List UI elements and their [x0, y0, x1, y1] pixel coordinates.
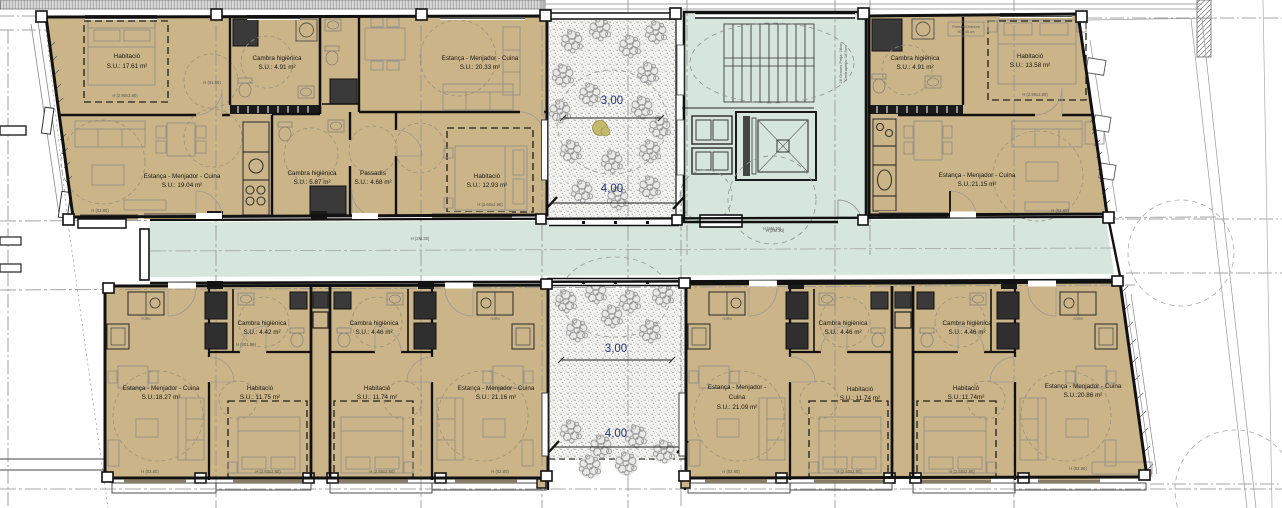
svg-text:Habitació: Habitació	[847, 386, 874, 393]
svg-text:S.U.: 12.93 m²: S.U.: 12.93 m²	[467, 182, 508, 189]
svg-text:H (2.60x2.90): H (2.60x2.90)	[477, 202, 503, 207]
svg-text:S.U.: 4.91 m²: S.U.: 4.91 m²	[896, 64, 933, 71]
svg-text:4,00: 4,00	[601, 183, 623, 195]
svg-text:S.U.: 4.46 m²: S.U.: 4.46 m²	[355, 329, 392, 336]
svg-text:H (02.80): H (02.80)	[141, 469, 159, 474]
svg-text:H (2.90x2.80): H (2.90x2.80)	[1022, 92, 1048, 97]
svg-text:S.U.:21.15 m²: S.U.:21.15 m²	[958, 181, 997, 188]
svg-text:Contrapetja: 18.5cm: Contrapetja: 18.5cm	[843, 44, 848, 81]
svg-text:S.U.: 17.61 m²: S.U.: 17.61 m²	[107, 63, 148, 70]
svg-text:4,00: 4,00	[605, 428, 627, 440]
svg-text:Passadís: Passadís	[360, 170, 386, 177]
svg-text:H (02.80): H (02.80)	[1051, 208, 1069, 213]
svg-text:Habitació: Habitació	[247, 385, 274, 392]
svg-text:3,00: 3,00	[601, 95, 623, 107]
svg-text:S.U.:11.74m²: S.U.:11.74m²	[948, 394, 985, 401]
svg-text:S.U.: 20.33 m²: S.U.: 20.33 m²	[460, 64, 501, 71]
svg-text:H (2.60x2.90): H (2.60x2.90)	[836, 469, 862, 474]
svg-text:H (2M.30): H (2M.30)	[766, 228, 785, 233]
svg-text:S.U.: 11.75 m²: S.U.: 11.75 m²	[240, 394, 280, 401]
svg-text:H (2.60x2.90): H (2.60x2.90)	[255, 469, 281, 474]
svg-text:S.U.: 4.46 m²: S.U.: 4.46 m²	[948, 329, 985, 336]
svg-text:H (01.50): H (01.50)	[203, 80, 221, 85]
svg-text:H (02.80): H (02.80)	[491, 469, 509, 474]
svg-text:Estança - Menjador - Cuina: Estança - Menjador - Cuina	[939, 172, 1016, 179]
svg-text:S.U.: 13.58 m²: S.U.: 13.58 m²	[1010, 62, 1051, 69]
svg-text:Habitació: Habitació	[474, 173, 501, 180]
svg-text:Estança - Menjador - Cuina: Estança - Menjador - Cuina	[1045, 383, 1122, 390]
svg-text:S.U.: 19.04 m²: S.U.: 19.04 m²	[162, 182, 203, 189]
svg-text:Habitació: Habitació	[1017, 53, 1044, 60]
svg-text:S.U.: 11.74 m²: S.U.: 11.74 m²	[357, 394, 397, 401]
svg-text:FORN: FORN	[490, 317, 500, 321]
svg-text:S.U.:20.86 m²: S.U.:20.86 m²	[1064, 392, 1103, 399]
svg-text:Cambra higiènica: Cambra higiènica	[237, 320, 286, 327]
svg-text:H (02.80): H (02.80)	[722, 469, 740, 474]
svg-text:Habitació: Habitació	[114, 53, 141, 60]
svg-text:S.U.: 4.68 m²: S.U.: 4.68 m²	[354, 179, 391, 186]
svg-text:FORN: FORN	[722, 317, 732, 321]
svg-text:Estança - Menjador - Cuina: Estança - Menjador - Cuina	[442, 55, 519, 62]
svg-text:S.U.: 5.87 m²: S.U.: 5.87 m²	[293, 179, 330, 186]
svg-text:S.U.: 4.46 m²: S.U.: 4.46 m²	[824, 329, 861, 336]
svg-text:FORN: FORN	[141, 317, 151, 321]
svg-text:Cambra higiènica: Cambra higiènica	[818, 320, 867, 327]
svg-text:FORN: FORN	[1073, 317, 1083, 321]
svg-text:S.U.: 21.16 m²: S.U.: 21.16 m²	[476, 394, 517, 401]
svg-text:S.U.: 4.91 m²: S.U.: 4.91 m²	[258, 64, 295, 71]
svg-text:H (02.80): H (02.80)	[91, 208, 109, 213]
svg-text:H (2.60x2.90): H (2.60x2.90)	[949, 469, 975, 474]
svg-text:Finestra/Obertura: Finestra/Obertura	[952, 25, 979, 29]
svg-text:S.U.: 4.42 m²: S.U.: 4.42 m²	[243, 329, 280, 336]
svg-text:S.U.: 21.09 m²: S.U.: 21.09 m²	[717, 404, 758, 411]
svg-text:Estança - Menjador - Cuina: Estança - Menjador - Cuina	[144, 173, 221, 180]
svg-text:Estança - Menjador - Cuina: Estança - Menjador - Cuina	[123, 385, 200, 392]
svg-text:Cambra higiènica: Cambra higiènica	[252, 55, 301, 62]
svg-text:Habitació: Habitació	[953, 385, 980, 392]
svg-text:Cambra higiènica: Cambra higiènica	[349, 320, 398, 327]
svg-text:H (2.60x2.90): H (2.60x2.90)	[369, 469, 395, 474]
svg-text:3,00: 3,00	[605, 343, 627, 355]
svg-text:H (2M.30): H (2M.30)	[411, 236, 430, 241]
svg-text:H (02.80): H (02.80)	[1069, 466, 1087, 471]
svg-text:Cuina: Cuina	[729, 394, 746, 401]
svg-text:Cambra higiènica: Cambra higiènica	[942, 320, 991, 327]
svg-text:90 x 45 cm: 90 x 45 cm	[957, 30, 974, 34]
svg-text:Cambra higiènica: Cambra higiènica	[287, 170, 336, 177]
svg-text:Estança - Menjador - Cuina: Estança - Menjador - Cuina	[458, 385, 535, 392]
svg-text:S.U.:18.27 m²: S.U.:18.27 m²	[142, 394, 181, 401]
svg-text:Habitació: Habitació	[364, 385, 391, 392]
svg-text:Estança - Menjador -: Estança - Menjador -	[708, 384, 766, 391]
svg-text:Cambra higiènica: Cambra higiènica	[890, 55, 939, 62]
svg-text:H (2.90x2.80): H (2.90x2.80)	[112, 93, 138, 98]
svg-text:H (001.50): H (001.50)	[236, 342, 256, 347]
svg-text:S.U.: 11.74 m²: S.U.: 11.74 m²	[840, 395, 880, 402]
